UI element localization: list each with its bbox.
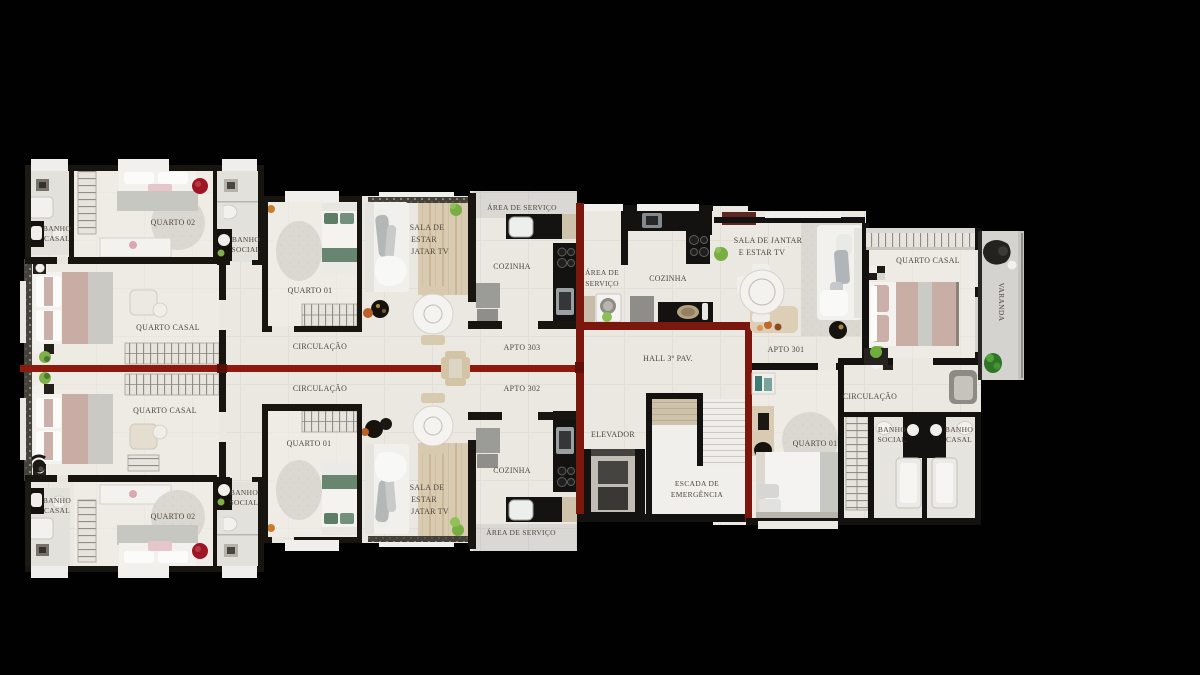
svg-text:CASAL: CASAL [44, 506, 70, 515]
svg-text:QUARTO 02: QUARTO 02 [151, 512, 196, 521]
svg-text:ÁREA DE: ÁREA DE [585, 267, 619, 277]
svg-text:QUARTO CASAL: QUARTO CASAL [133, 406, 197, 415]
svg-text:BANHO: BANHO [945, 425, 973, 434]
svg-text:COZINHA: COZINHA [649, 274, 687, 283]
svg-text:VARANDA: VARANDA [997, 283, 1006, 322]
svg-text:ESCADA DE: ESCADA DE [675, 479, 719, 488]
svg-text:QUARTO 01: QUARTO 01 [288, 286, 333, 295]
svg-text:CASAL: CASAL [44, 234, 70, 243]
svg-text:CIRCULAÇÃO: CIRCULAÇÃO [293, 341, 347, 351]
svg-text:COZINHA: COZINHA [493, 466, 531, 475]
svg-text:ESTAR: ESTAR [411, 235, 437, 244]
svg-text:QUARTO CASAL: QUARTO CASAL [896, 256, 960, 265]
svg-text:SALA DE: SALA DE [410, 483, 445, 492]
svg-text:JATAR TV: JATAR TV [411, 507, 449, 516]
svg-text:SALA DE: SALA DE [410, 223, 445, 232]
svg-text:CIRCULAÇÃO: CIRCULAÇÃO [843, 391, 897, 401]
svg-text:HALL 3º PAV.: HALL 3º PAV. [643, 354, 693, 363]
svg-text:SALA DE JANTAR: SALA DE JANTAR [734, 236, 803, 245]
svg-text:COZINHA: COZINHA [493, 262, 531, 271]
svg-text:EMERGÊNCIA: EMERGÊNCIA [671, 489, 723, 499]
svg-text:SOCIAL: SOCIAL [232, 245, 261, 254]
svg-text:BANHO: BANHO [232, 235, 260, 244]
svg-text:QUARTO 01: QUARTO 01 [793, 439, 838, 448]
svg-text:QUARTO CASAL: QUARTO CASAL [136, 323, 200, 332]
svg-text:ÁREA DE SERVIÇO: ÁREA DE SERVIÇO [486, 527, 556, 537]
svg-text:BANHO: BANHO [43, 496, 71, 505]
svg-text:E ESTAR TV: E ESTAR TV [739, 248, 786, 257]
svg-text:QUARTO 01: QUARTO 01 [287, 439, 332, 448]
svg-text:CASAL: CASAL [946, 435, 972, 444]
svg-text:BANHO: BANHO [878, 425, 906, 434]
svg-text:SERVIÇO: SERVIÇO [585, 279, 619, 288]
svg-text:QUARTO 02: QUARTO 02 [151, 218, 196, 227]
svg-text:APTO 302: APTO 302 [504, 384, 541, 393]
svg-text:BANHO: BANHO [230, 488, 258, 497]
svg-text:JATAR TV: JATAR TV [411, 247, 449, 256]
svg-text:APTO 303: APTO 303 [504, 343, 541, 352]
svg-text:ÁREA DE SERVIÇO: ÁREA DE SERVIÇO [487, 202, 557, 212]
svg-text:ESTAR: ESTAR [411, 495, 437, 504]
svg-text:CIRCULAÇÃO: CIRCULAÇÃO [293, 383, 347, 393]
svg-text:SOCIAL: SOCIAL [878, 435, 907, 444]
svg-text:SOCIAL: SOCIAL [230, 498, 259, 507]
svg-text:BANHO: BANHO [43, 224, 71, 233]
svg-text:ELEVADOR: ELEVADOR [591, 430, 635, 439]
svg-text:APTO 301: APTO 301 [768, 345, 805, 354]
